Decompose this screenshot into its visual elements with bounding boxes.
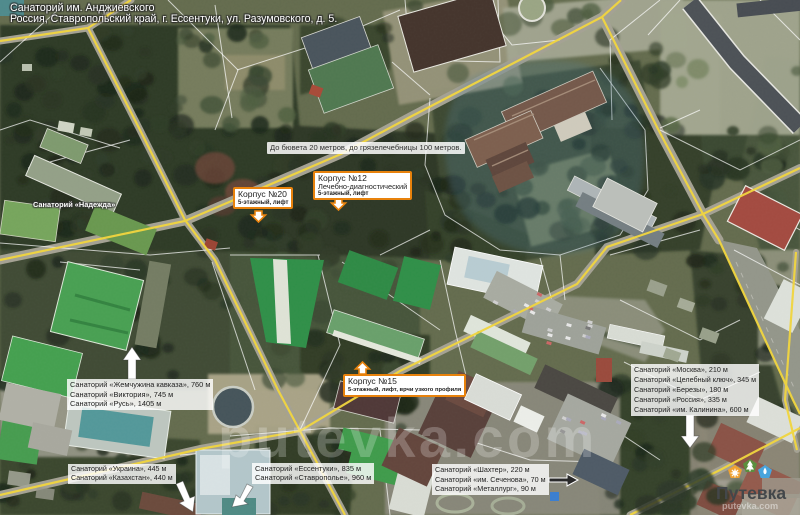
svg-text:putevka.com: putevka.com (218, 406, 598, 469)
